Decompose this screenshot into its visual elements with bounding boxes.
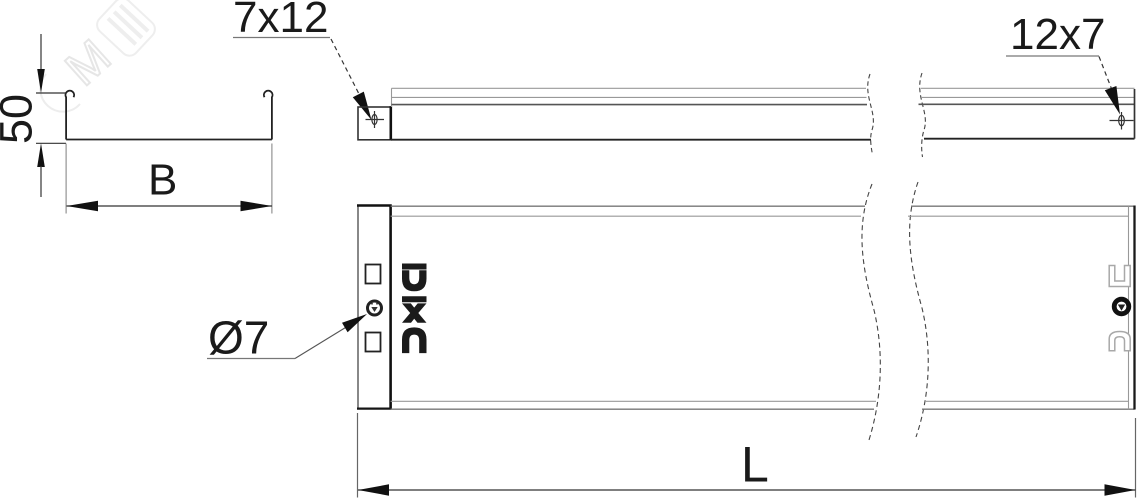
svg-text:Ø7: Ø7	[208, 312, 269, 364]
svg-text:7x12: 7x12	[233, 0, 328, 42]
svg-text:50: 50	[0, 94, 42, 144]
svg-text:12x7: 12x7	[1010, 10, 1105, 59]
svg-text:B: B	[148, 156, 177, 205]
svg-text:L: L	[741, 437, 769, 493]
